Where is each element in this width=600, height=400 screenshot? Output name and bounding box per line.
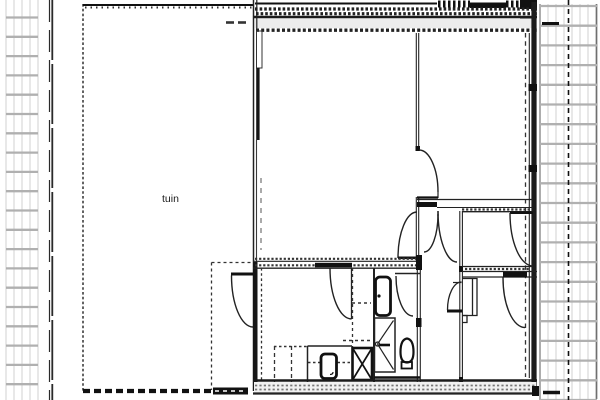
svg-text:tuin: tuin — [162, 193, 179, 205]
